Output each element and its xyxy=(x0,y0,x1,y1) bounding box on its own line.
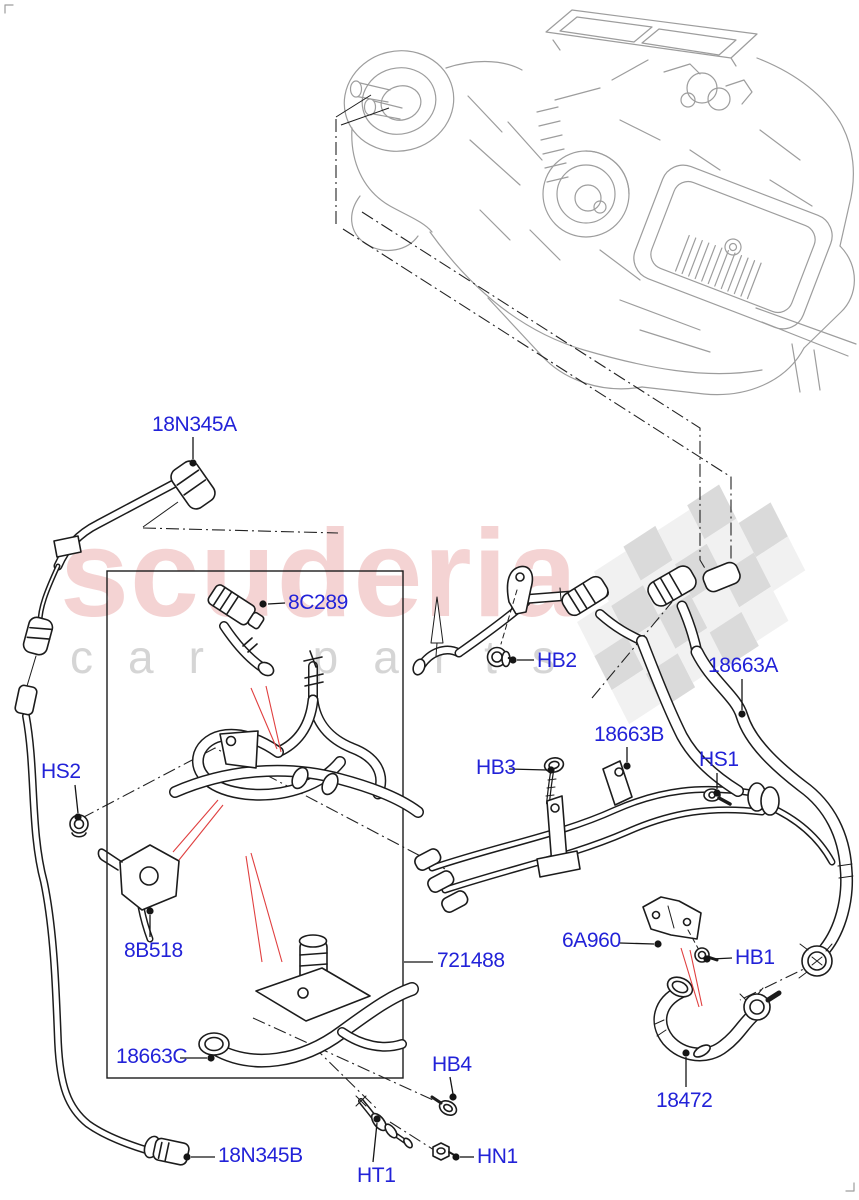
part-label-HB2[interactable]: HB2 xyxy=(537,650,577,671)
part-label-8C289[interactable]: 8C289 xyxy=(288,592,348,613)
part-label-HB1[interactable]: HB1 xyxy=(735,947,775,968)
part-label-18663C[interactable]: 18663C xyxy=(116,1046,187,1067)
part-label-HS2[interactable]: HS2 xyxy=(41,761,81,782)
part-label-18663B[interactable]: 18663B xyxy=(594,724,664,745)
part-label-HB3[interactable]: HB3 xyxy=(476,757,516,778)
part-label-18472[interactable]: 18472 xyxy=(656,1090,712,1111)
part-label-HS1[interactable]: HS1 xyxy=(699,749,739,770)
part-label-6A960[interactable]: 6A960 xyxy=(562,930,621,951)
part-label-18N345B[interactable]: 18N345B xyxy=(218,1145,303,1166)
part-boundary-box xyxy=(107,571,403,1078)
part-label-18N345A[interactable]: 18N345A xyxy=(152,414,237,435)
hvac-assembly-art xyxy=(334,10,856,395)
part-label-HN1[interactable]: HN1 xyxy=(477,1146,518,1167)
part-label-721488[interactable]: 721488 xyxy=(437,950,505,971)
part-label-18663A[interactable]: 18663A xyxy=(708,655,778,676)
diagram-drawing xyxy=(0,0,859,1200)
part-label-HT1[interactable]: HT1 xyxy=(357,1165,395,1186)
part-label-HB4[interactable]: HB4 xyxy=(432,1054,472,1075)
part-label-8B518[interactable]: 8B518 xyxy=(124,940,183,961)
parts-diagram-canvas: scuderia car parts xyxy=(0,0,859,1200)
